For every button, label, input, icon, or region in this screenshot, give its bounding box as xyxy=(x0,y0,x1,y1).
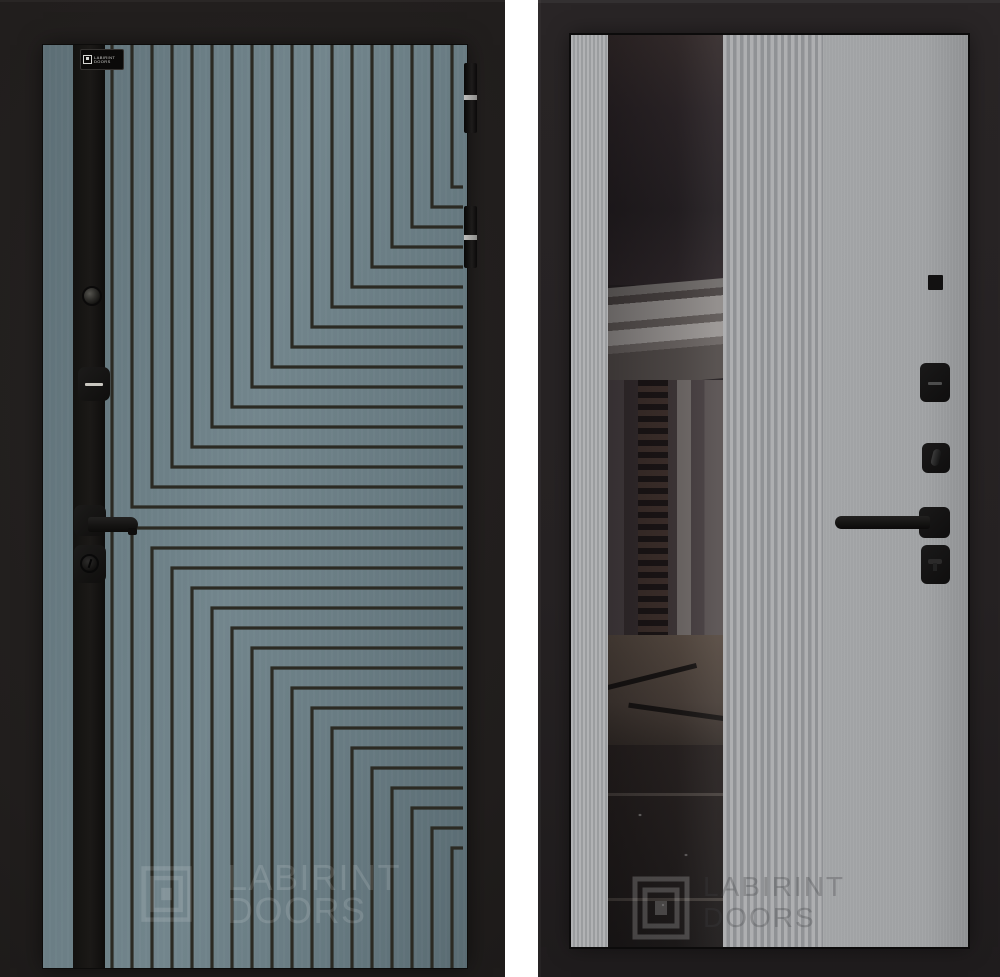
door-handle-lever xyxy=(88,517,138,532)
mirror-insert xyxy=(608,35,724,947)
brand-maze-icon xyxy=(83,55,92,64)
lock-plate-thumbturn xyxy=(922,443,950,473)
brand-plate: LABIRINT DOORS xyxy=(80,49,124,70)
hinge-pin xyxy=(464,235,477,240)
keyhole-cover-plate xyxy=(78,367,110,401)
concentric-corner-pattern xyxy=(43,45,467,968)
ribbed-fluted-section xyxy=(723,35,823,947)
door-handle-lever xyxy=(835,516,930,529)
hinge-pin xyxy=(464,95,477,100)
peephole xyxy=(82,286,102,306)
lock-slot xyxy=(928,382,942,385)
lock-plate-slot xyxy=(920,363,950,402)
mirror-tint-overlay xyxy=(608,35,723,947)
right-door-photo: LABIRINT DOORS xyxy=(538,0,1000,977)
product-image-two-door-views: LABIRINT DOORS LABIRINT xyxy=(0,0,1000,977)
cylinder-knob xyxy=(80,554,99,573)
left-door-leaf: LABIRINT DOORS LABIRINT xyxy=(43,45,467,968)
right-door-leaf: LABIRINT DOORS xyxy=(571,35,968,947)
left-door-photo: LABIRINT DOORS LABIRINT xyxy=(0,0,505,977)
plain-gray-section xyxy=(823,35,968,947)
white-gutter xyxy=(505,0,538,977)
thumbturn-knob xyxy=(930,448,942,466)
hinge-middle xyxy=(464,206,477,268)
lock-plate-lower xyxy=(921,545,950,584)
lower-thumbturn xyxy=(928,559,942,564)
peephole-square-cover xyxy=(928,275,943,290)
hinge-top xyxy=(464,63,477,133)
fluted-edge-strip xyxy=(571,35,608,947)
keyhole-slot xyxy=(85,383,103,386)
pattern-lines xyxy=(112,45,463,968)
cylinder-lock-plate xyxy=(74,545,106,583)
brand-plate-text: LABIRINT DOORS xyxy=(94,56,115,64)
